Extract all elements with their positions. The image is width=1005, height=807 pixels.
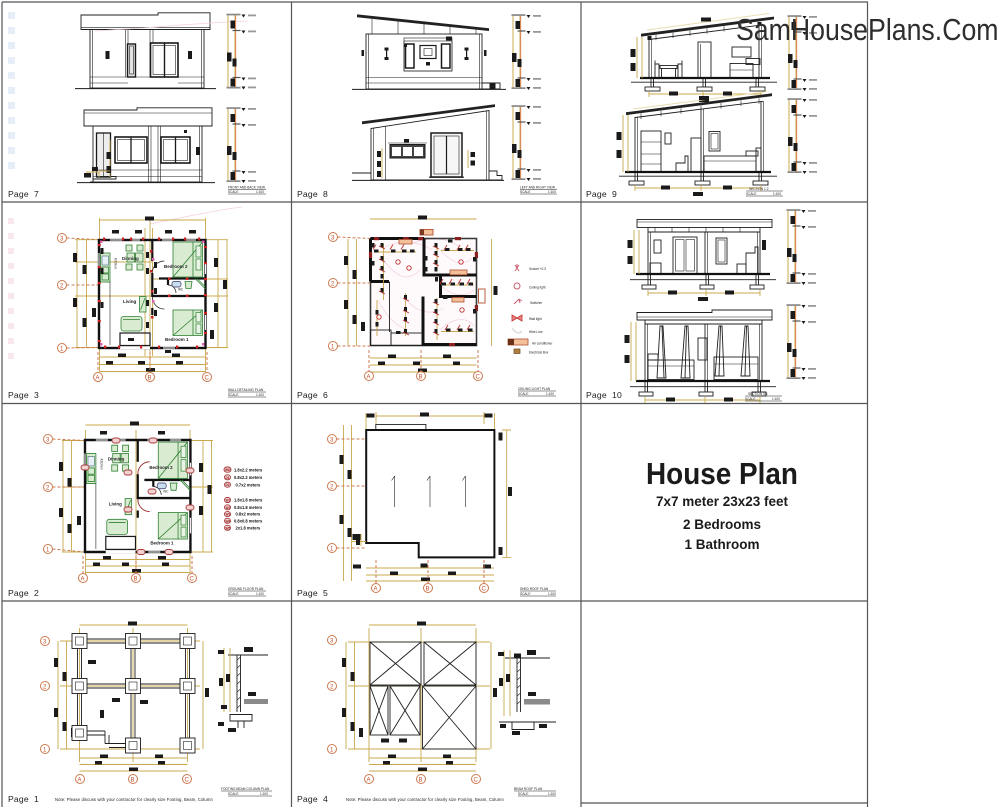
svg-text:0.8x2.2 meters: 0.8x2.2 meters: [234, 475, 263, 480]
svg-text:SCALE: SCALE: [745, 397, 755, 401]
svg-text:SCALE: SCALE: [228, 393, 238, 397]
svg-text:Wire Line: Wire Line: [529, 330, 543, 334]
svg-text:2: 2: [330, 485, 334, 491]
svg-text:SCALE: SCALE: [520, 190, 530, 194]
svg-text:SCALE: SCALE: [228, 592, 238, 596]
svg-text:C: C: [482, 587, 487, 593]
svg-text:FOOTING BEAM COLUMN PLAN: FOOTING BEAM COLUMN PLAN: [221, 787, 270, 791]
svg-text:SCALE: SCALE: [520, 592, 530, 596]
svg-text:CEILING LIGHT PLAN: CEILING LIGHT PLAN: [518, 387, 551, 391]
svg-text:1:100: 1:100: [256, 393, 264, 397]
svg-text:3: 3: [330, 639, 334, 645]
svg-text:Switcher: Switcher: [530, 301, 543, 305]
svg-text:3: 3: [330, 438, 334, 444]
svg-text:Air conditioner: Air conditioner: [532, 342, 553, 346]
svg-text:SCALE: SCALE: [228, 792, 238, 796]
svg-text:SECTION 1:2: SECTION 1:2: [749, 187, 769, 191]
svg-text:2: 2: [330, 685, 334, 691]
svg-text:3: 3: [60, 237, 64, 243]
svg-text:0.8x1.8 meters: 0.8x1.8 meters: [234, 505, 263, 510]
svg-text:SCALE: SCALE: [518, 392, 528, 396]
svg-text:SCALE: SCALE: [518, 792, 528, 796]
svg-text:C: C: [474, 778, 479, 784]
svg-text:1.8x1.8 meters: 1.8x1.8 meters: [234, 498, 263, 503]
svg-text:A: A: [81, 577, 85, 583]
svg-text:A: A: [96, 376, 100, 382]
svg-text:2: 2: [60, 284, 64, 290]
svg-text:B: B: [419, 778, 423, 784]
svg-text:1: 1: [43, 748, 47, 754]
svg-text:1:100: 1:100: [256, 190, 264, 194]
svg-text:W2: W2: [226, 506, 231, 510]
svg-text:2: 2: [43, 685, 47, 691]
svg-text:B: B: [419, 375, 423, 381]
svg-text:1: 1: [331, 345, 335, 351]
svg-text:1: 1: [330, 748, 334, 754]
svg-text:W4: W4: [226, 519, 231, 523]
svg-text:A: A: [367, 778, 371, 784]
svg-text:W1: W1: [226, 499, 231, 503]
svg-text:C: C: [190, 577, 195, 583]
svg-text:0.8x2 meters: 0.8x2 meters: [236, 512, 262, 517]
svg-text:B: B: [426, 587, 430, 593]
svg-text:Wall light: Wall light: [529, 317, 542, 321]
svg-text:1:100: 1:100: [260, 792, 268, 796]
svg-text:Ceiling light: Ceiling light: [529, 286, 546, 290]
svg-text:2: 2: [46, 486, 50, 492]
svg-text:2x1.8 meters: 2x1.8 meters: [236, 525, 262, 530]
svg-text:1:100: 1:100: [548, 792, 556, 796]
svg-text:3: 3: [331, 236, 335, 242]
svg-text:A: A: [367, 375, 371, 381]
svg-text:1:100: 1:100: [773, 192, 781, 196]
svg-text:C: C: [205, 376, 210, 382]
svg-text:1.8x2.2 meters: 1.8x2.2 meters: [234, 467, 263, 472]
svg-text:Socket +0.3: Socket +0.3: [529, 267, 546, 271]
svg-text:1: 1: [60, 347, 64, 353]
svg-text:D1: D1: [226, 476, 230, 480]
svg-text:1:100: 1:100: [548, 592, 556, 596]
svg-text:B: B: [134, 577, 138, 583]
svg-text:1:100: 1:100: [772, 397, 780, 401]
svg-text:B: B: [131, 778, 135, 784]
svg-text:1:100: 1:100: [548, 190, 556, 194]
svg-text:SCALE: SCALE: [746, 192, 756, 196]
svg-text:SECTION 3:4: SECTION 3:4: [748, 392, 768, 396]
svg-text:W3: W3: [226, 513, 231, 517]
svg-text:SCALE: SCALE: [228, 190, 238, 194]
svg-text:Electrical Box: Electrical Box: [529, 351, 549, 355]
svg-text:1: 1: [46, 548, 50, 554]
svg-text:LEFT AND RIGHT VIEW: LEFT AND RIGHT VIEW: [520, 186, 555, 190]
svg-text:WD: WD: [225, 468, 231, 472]
svg-text:0.8x0.8 meters: 0.8x0.8 meters: [234, 518, 263, 523]
svg-text:SHED ROOF PLAN: SHED ROOF PLAN: [520, 587, 549, 591]
svg-text:WALL DETAILING PLAN: WALL DETAILING PLAN: [228, 388, 264, 392]
svg-text:B: B: [148, 376, 152, 382]
svg-text:2: 2: [331, 282, 335, 288]
svg-text:1: 1: [330, 547, 334, 553]
svg-text:A: A: [374, 587, 378, 593]
svg-text:BEAM ROOF PLAN: BEAM ROOF PLAN: [514, 787, 543, 791]
svg-text:0.7x2 meters: 0.7x2 meters: [236, 482, 262, 487]
svg-text:C: C: [185, 778, 190, 784]
svg-text:D2: D2: [226, 483, 230, 487]
svg-text:1:100: 1:100: [546, 392, 554, 396]
svg-text:C: C: [476, 375, 481, 381]
svg-text:3: 3: [46, 438, 50, 444]
svg-text:GROUND FLOOR PLAN: GROUND FLOOR PLAN: [228, 587, 264, 591]
svg-text:1:100: 1:100: [256, 592, 264, 596]
svg-text:3: 3: [43, 640, 47, 646]
svg-text:W5: W5: [226, 526, 231, 530]
svg-text:FRONT AND BACK VIEW: FRONT AND BACK VIEW: [228, 186, 265, 190]
svg-text:A: A: [78, 778, 82, 784]
